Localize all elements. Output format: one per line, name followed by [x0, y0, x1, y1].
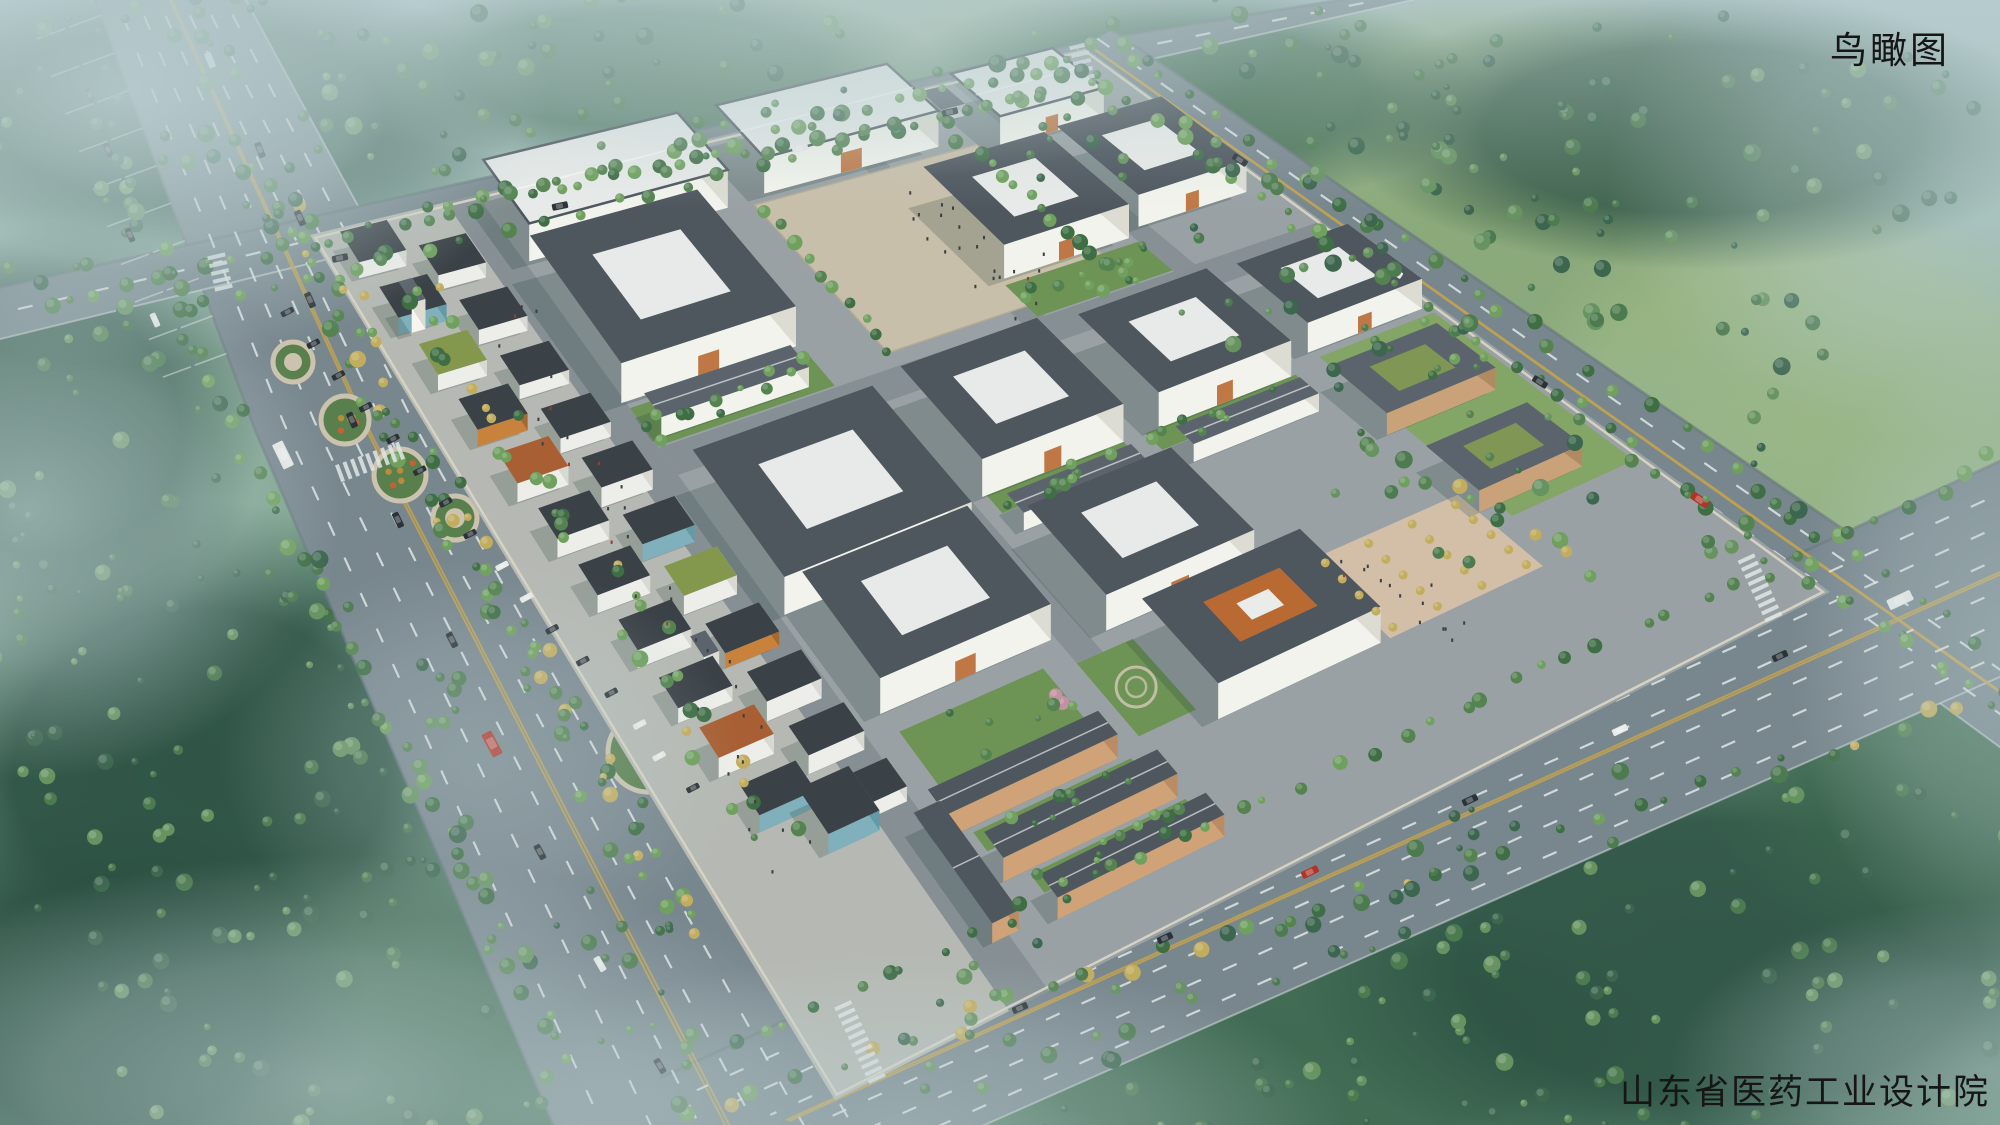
aerial-rendering-stage: 鸟瞰图 山东省医药工业设计院: [0, 0, 2000, 1125]
design-institute-credit: 山东省医药工业设计院: [1620, 1064, 1990, 1115]
view-title-label: 鸟瞰图: [1830, 20, 1950, 74]
industrial-park-aerial-scene: [0, 0, 2000, 1125]
